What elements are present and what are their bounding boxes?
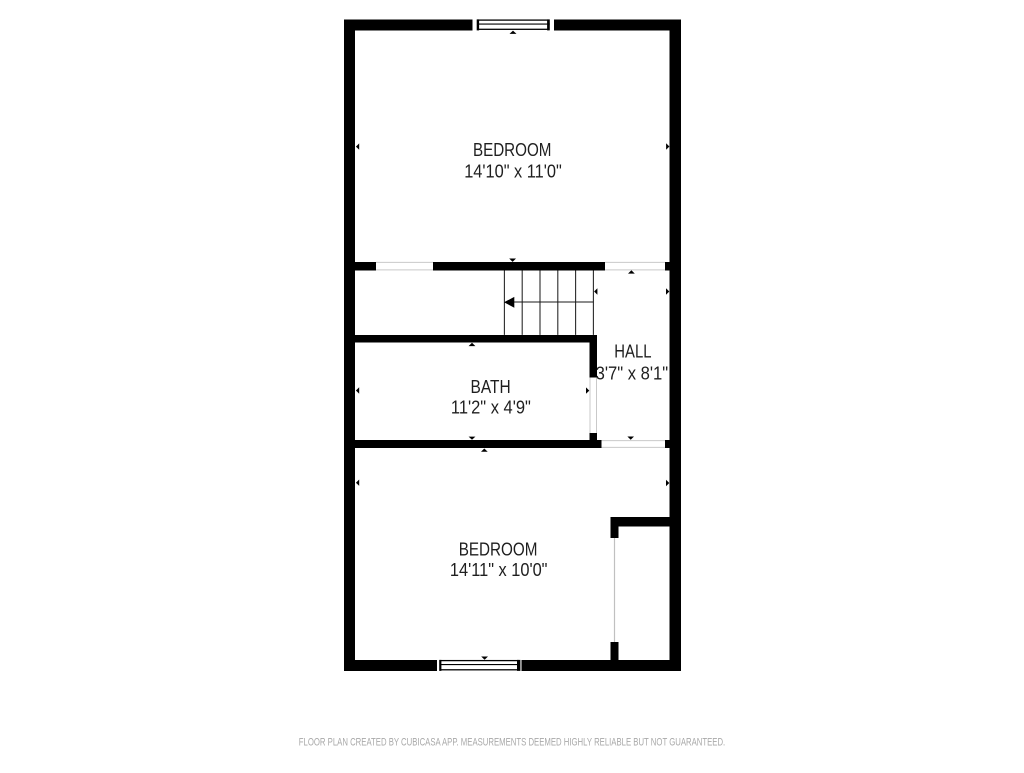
svg-text:11'2" x 4'9": 11'2" x 4'9" — [451, 398, 531, 418]
svg-text:BATH: BATH — [471, 377, 511, 397]
svg-text:HALL: HALL — [614, 342, 651, 362]
svg-text:3'7" x 8'1": 3'7" x 8'1" — [596, 364, 669, 384]
svg-text:14'10" x 11'0": 14'10" x 11'0" — [464, 162, 562, 182]
svg-text:FLOOR PLAN CREATED BY CUBICASA: FLOOR PLAN CREATED BY CUBICASA APP. MEAS… — [299, 736, 725, 748]
svg-text:BEDROOM: BEDROOM — [459, 540, 538, 560]
svg-text:14'11" x 10'0": 14'11" x 10'0" — [450, 560, 548, 580]
svg-text:BEDROOM: BEDROOM — [473, 140, 552, 160]
